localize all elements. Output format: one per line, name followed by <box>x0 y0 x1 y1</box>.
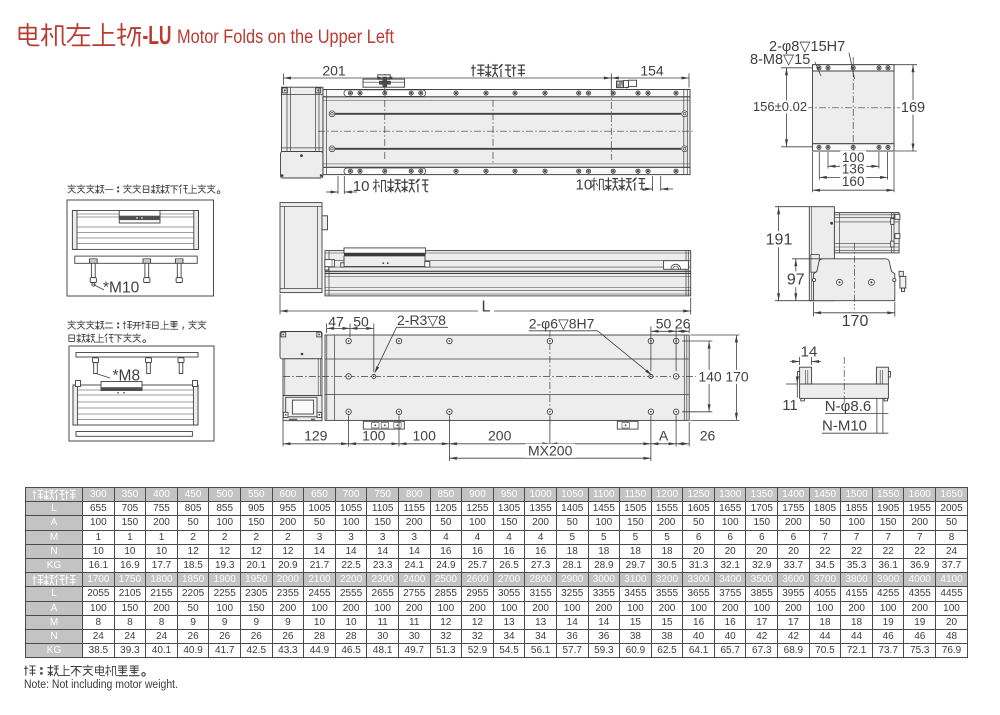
svg-text:50: 50 <box>353 313 369 329</box>
svg-text:A: A <box>659 428 669 444</box>
svg-text:191: 191 <box>766 231 793 248</box>
svg-text:26: 26 <box>700 428 716 444</box>
svg-text:2-φ6▽8H7: 2-φ6▽8H7 <box>529 316 595 332</box>
svg-text:14: 14 <box>801 343 818 360</box>
svg-text:129: 129 <box>304 428 328 444</box>
svg-text:*M8: *M8 <box>113 368 141 385</box>
svg-text:170: 170 <box>725 368 749 384</box>
svg-text:100: 100 <box>413 428 437 444</box>
svg-text:26: 26 <box>675 316 691 332</box>
svg-text:N-M10: N-M10 <box>822 418 867 435</box>
svg-text:N-φ8.6: N-φ8.6 <box>825 398 871 415</box>
svg-text:*M10: *M10 <box>103 280 140 297</box>
svg-text:L: L <box>482 299 491 316</box>
svg-text:2-R3▽8: 2-R3▽8 <box>397 312 446 328</box>
svg-text:140: 140 <box>698 368 722 384</box>
svg-text:97: 97 <box>787 271 805 288</box>
svg-text:50: 50 <box>656 316 672 332</box>
svg-text:11: 11 <box>782 397 798 414</box>
svg-text:170: 170 <box>842 313 869 330</box>
svg-text:100: 100 <box>362 428 386 444</box>
svg-text:MX200: MX200 <box>528 442 573 458</box>
svg-text:47: 47 <box>328 313 344 329</box>
svg-text:200: 200 <box>488 428 512 444</box>
